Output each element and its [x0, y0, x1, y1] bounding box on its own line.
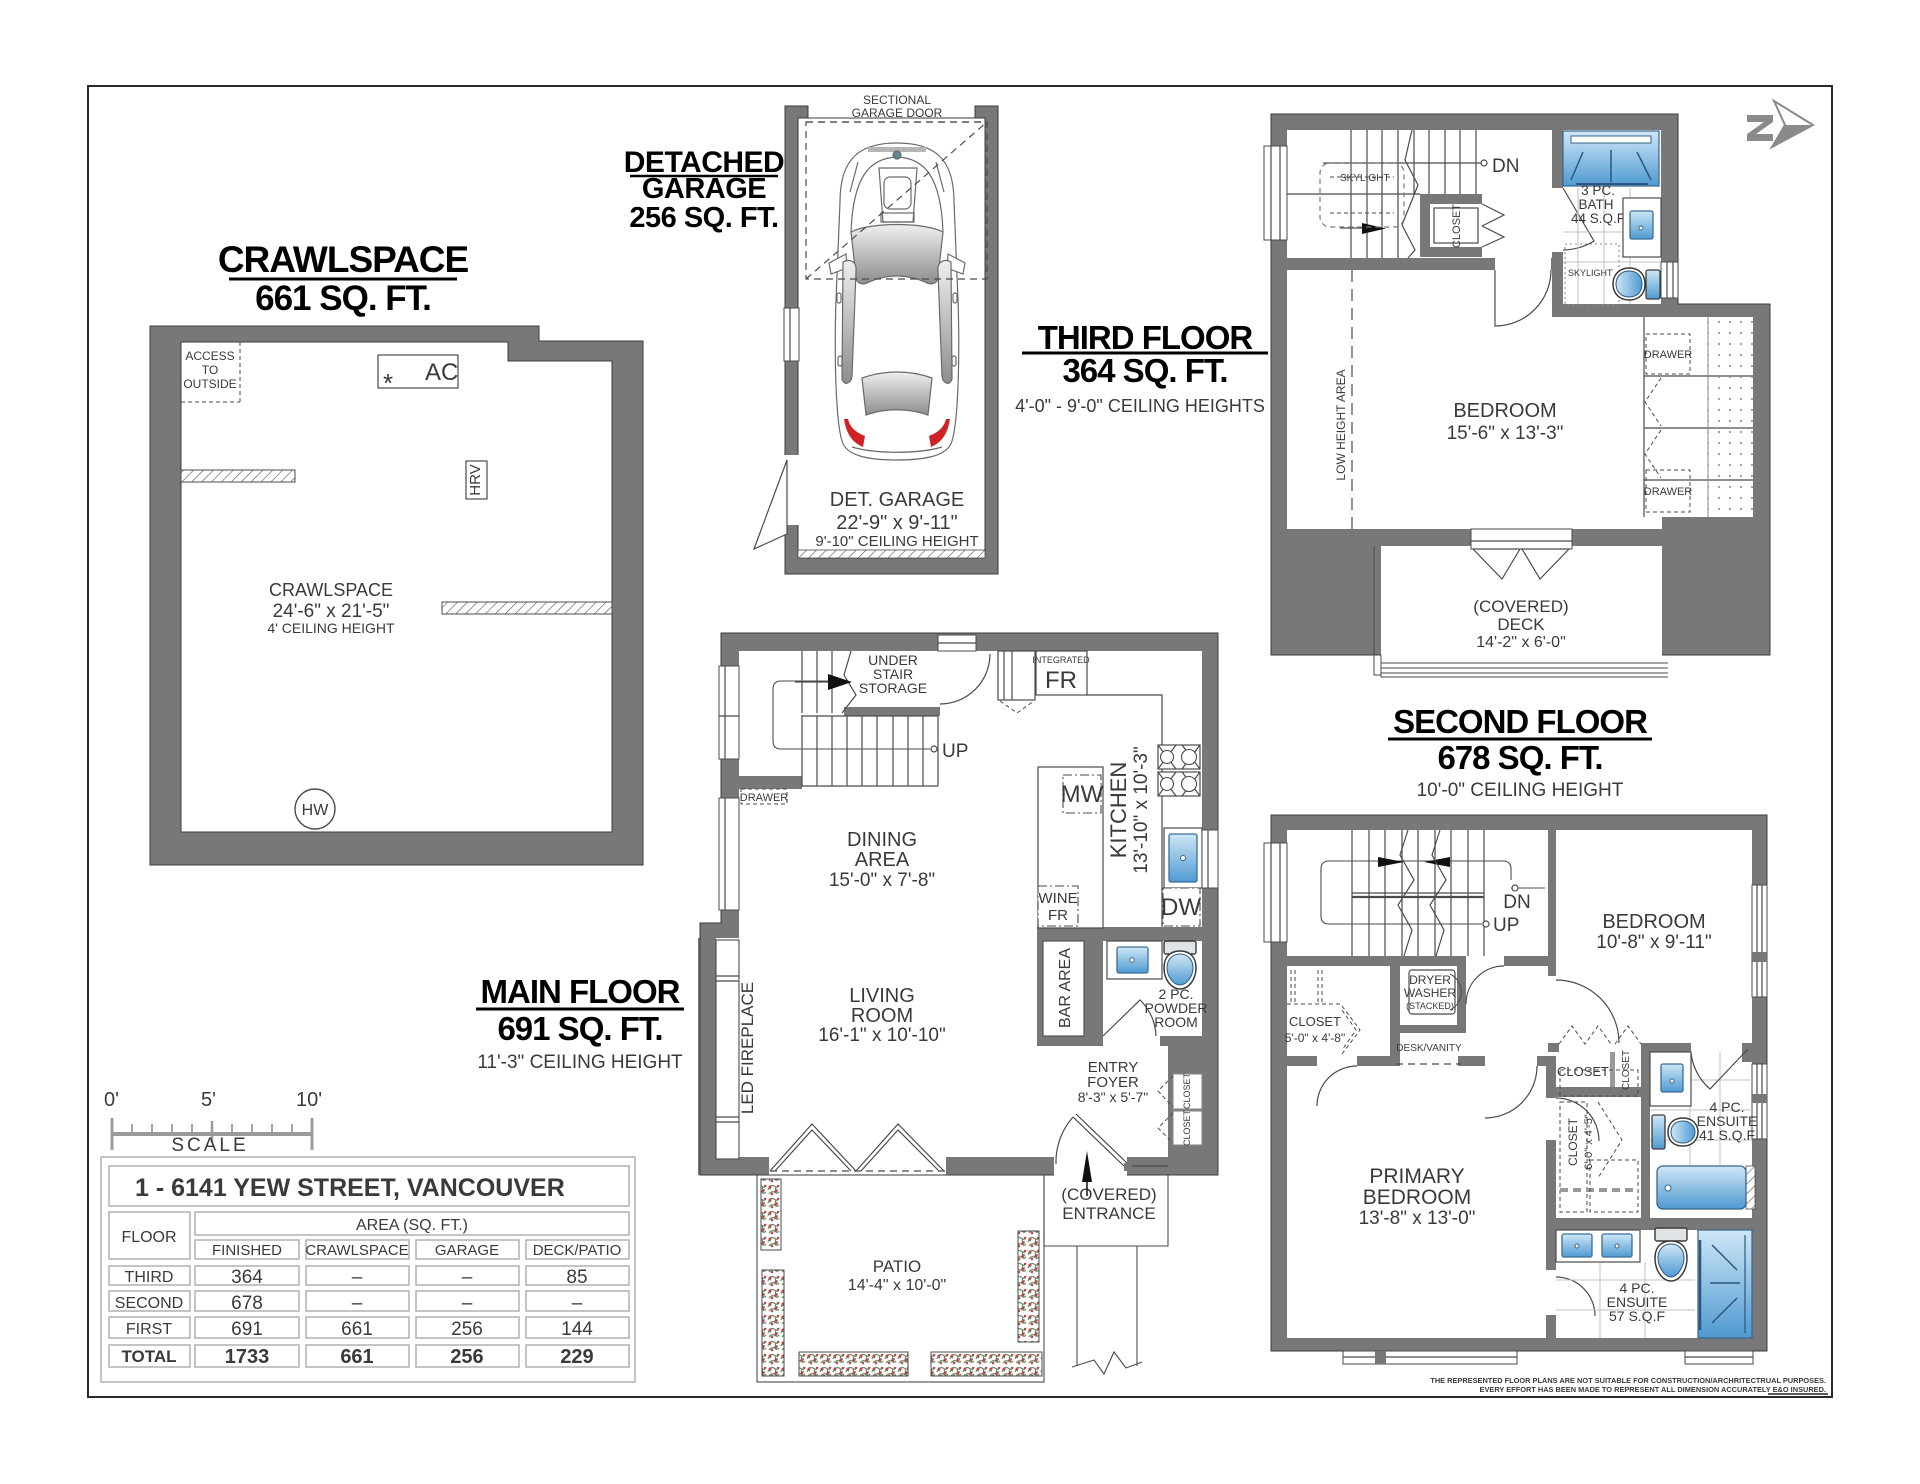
svg-text:661: 661	[340, 1346, 373, 1368]
svg-text:OUTSIDE: OUTSIDE	[183, 377, 236, 391]
svg-text:TOTAL: TOTAL	[121, 1347, 176, 1366]
svg-text:661 SQ. FT.: 661 SQ. FT.	[255, 279, 431, 318]
svg-text:UP: UP	[942, 741, 968, 762]
svg-text:8'-3" x 5'-7": 8'-3" x 5'-7"	[1078, 1089, 1149, 1105]
svg-text:15'-0" x 7'-8": 15'-0" x 7'-8"	[829, 870, 935, 891]
svg-text:HW: HW	[302, 802, 330, 819]
svg-text:BEDROOM: BEDROOM	[1602, 911, 1705, 933]
svg-text:(STACKED): (STACKED)	[1406, 1001, 1454, 1011]
svg-text:FIRST: FIRST	[126, 1321, 172, 1338]
svg-text:THIRD FLOOR: THIRD FLOOR	[1038, 319, 1254, 356]
svg-text:9'-10" CEILING HEIGHT: 9'-10" CEILING HEIGHT	[815, 533, 978, 550]
svg-text:BATH: BATH	[1578, 197, 1613, 212]
svg-text:EVERY EFFORT HAS BEEN MADE TO: EVERY EFFORT HAS BEEN MADE TO REPRESENT …	[1480, 1385, 1826, 1394]
svg-text:CLOSET: CLOSET	[1182, 1109, 1192, 1146]
svg-text:10': 10'	[296, 1089, 322, 1111]
svg-text:(COVERED): (COVERED)	[1473, 597, 1568, 616]
svg-text:ENTRANCE: ENTRANCE	[1062, 1204, 1156, 1223]
svg-text:BEDROOM: BEDROOM	[1453, 400, 1556, 422]
svg-text:–: –	[352, 1293, 363, 1314]
svg-text:ROOM: ROOM	[851, 1005, 913, 1027]
svg-text:CLOSET: CLOSET	[1182, 1072, 1192, 1109]
svg-text:SECOND: SECOND	[115, 1295, 183, 1312]
svg-text:256: 256	[451, 1319, 483, 1340]
svg-text:DECK/PATIO: DECK/PATIO	[533, 1242, 622, 1259]
svg-text:6'-0" x 4'-5": 6'-0" x 4'-5"	[1583, 1114, 1595, 1170]
svg-text:DET. GARAGE: DET. GARAGE	[830, 489, 964, 511]
svg-text:AC: AC	[425, 359, 458, 386]
svg-text:PATIO: PATIO	[873, 1257, 922, 1276]
svg-text:691 SQ. FT.: 691 SQ. FT.	[497, 1010, 662, 1047]
svg-text:13'-8" x 13'-0": 13'-8" x 13'-0"	[1359, 1208, 1476, 1229]
svg-text:KITCHEN: KITCHEN	[1106, 762, 1131, 859]
svg-text:GARAGE: GARAGE	[435, 1242, 499, 1259]
svg-text:PRIMARY: PRIMARY	[1369, 1165, 1464, 1188]
svg-text:678: 678	[231, 1293, 263, 1314]
svg-text:24'-6" x 21'-5": 24'-6" x 21'-5"	[273, 601, 390, 622]
svg-text:(COVERED): (COVERED)	[1061, 1185, 1156, 1204]
svg-text:UP: UP	[1493, 915, 1519, 936]
svg-text:WINE: WINE	[1038, 890, 1077, 907]
svg-text:14'-4" x 10'-0": 14'-4" x 10'-0"	[848, 1277, 946, 1294]
svg-text:661: 661	[341, 1319, 373, 1340]
svg-text:CLOSET: CLOSET	[1289, 1014, 1341, 1029]
svg-text:–: –	[462, 1267, 473, 1288]
svg-text:85: 85	[566, 1267, 587, 1288]
svg-text:DW: DW	[1161, 894, 1201, 921]
svg-text:CLOSET: CLOSET	[1566, 1117, 1580, 1166]
svg-text:FR: FR	[1045, 667, 1077, 694]
svg-text:MW: MW	[1061, 781, 1104, 808]
svg-text:22'-9" x 9'-11": 22'-9" x 9'-11"	[836, 512, 958, 534]
svg-text:–: –	[462, 1293, 473, 1314]
svg-text:364: 364	[231, 1267, 263, 1288]
svg-text:AREA (SQ. FT.): AREA (SQ. FT.)	[356, 1217, 468, 1234]
svg-text:CRAWLSPACE: CRAWLSPACE	[305, 1242, 408, 1259]
svg-text:DRAWER: DRAWER	[1644, 486, 1693, 498]
svg-text:DRAWER: DRAWER	[740, 792, 789, 804]
svg-text:AREA: AREA	[855, 849, 910, 871]
svg-text:ACCESS: ACCESS	[185, 349, 234, 363]
svg-text:14'-2" x 6'-0": 14'-2" x 6'-0"	[1476, 634, 1566, 651]
svg-text:GARAGE: GARAGE	[642, 173, 766, 205]
svg-text:CRAWLSPACE: CRAWLSPACE	[218, 239, 469, 280]
svg-text:364 SQ. FT.: 364 SQ. FT.	[1062, 352, 1227, 389]
svg-text:691: 691	[231, 1319, 263, 1340]
svg-text:DESK/VANITY: DESK/VANITY	[1396, 1043, 1462, 1054]
svg-text:SKYLIGHT: SKYLIGHT	[1340, 173, 1389, 184]
svg-text:THE REPRESENTED FLOOR PLANS AR: THE REPRESENTED FLOOR PLANS ARE NOT SUIT…	[1430, 1376, 1826, 1385]
svg-text:1733: 1733	[225, 1346, 270, 1368]
svg-text:DN: DN	[1492, 156, 1519, 177]
svg-text:DRYER: DRYER	[1409, 973, 1451, 987]
svg-text:4'-0" - 9'-0" CEILING HEIGHTS: 4'-0" - 9'-0" CEILING HEIGHTS	[1015, 396, 1265, 416]
svg-text:–: –	[572, 1293, 583, 1314]
svg-text:SKYLIGHT: SKYLIGHT	[1568, 268, 1613, 278]
svg-text:SECTIONAL: SECTIONAL	[863, 93, 931, 107]
svg-text:–: –	[352, 1267, 363, 1288]
svg-text:GARAGE DOOR: GARAGE DOOR	[852, 106, 943, 120]
svg-text:INTEGRATED: INTEGRATED	[1032, 655, 1090, 665]
svg-text:256 SQ. FT.: 256 SQ. FT.	[629, 202, 778, 234]
svg-text:CLOSET: CLOSET	[1451, 204, 1463, 248]
svg-text:44 S.Q.F: 44 S.Q.F	[1571, 211, 1625, 226]
svg-text:BAR AREA: BAR AREA	[1057, 948, 1074, 1028]
svg-text:SECOND FLOOR: SECOND FLOOR	[1393, 703, 1648, 740]
svg-text:5'-0" x 4'-8": 5'-0" x 4'-8"	[1285, 1031, 1345, 1045]
svg-text:MAIN FLOOR: MAIN FLOOR	[481, 973, 681, 1010]
svg-text:DRAWER: DRAWER	[1644, 349, 1693, 361]
svg-text:144: 144	[561, 1319, 593, 1340]
svg-text:THIRD: THIRD	[125, 1269, 174, 1286]
svg-text:10'-8" x 9'-11": 10'-8" x 9'-11"	[1596, 932, 1711, 953]
svg-text:16'-1" x 10'-10": 16'-1" x 10'-10"	[818, 1025, 945, 1046]
svg-text:4' CEILING HEIGHT: 4' CEILING HEIGHT	[267, 620, 395, 636]
svg-text:15'-6" x 13'-3": 15'-6" x 13'-3"	[1447, 423, 1564, 444]
svg-text:678 SQ. FT.: 678 SQ. FT.	[1437, 739, 1602, 776]
svg-text:DECK: DECK	[1497, 615, 1545, 634]
svg-text:229: 229	[560, 1346, 593, 1368]
svg-text:41 S.Q.F: 41 S.Q.F	[1699, 1127, 1755, 1143]
svg-text:11'-3" CEILING HEIGHT: 11'-3" CEILING HEIGHT	[477, 1052, 683, 1073]
svg-text:13'-10" x 10'-3": 13'-10" x 10'-3"	[1131, 746, 1152, 873]
svg-text:3 PC.: 3 PC.	[1581, 183, 1615, 198]
svg-text:BEDROOM: BEDROOM	[1363, 1186, 1472, 1209]
svg-text:0': 0'	[104, 1089, 119, 1111]
svg-text:CLOSET: CLOSET	[1557, 1064, 1609, 1079]
svg-text:*: *	[383, 368, 393, 398]
svg-text:DINING: DINING	[847, 829, 917, 851]
svg-text:5': 5'	[201, 1089, 216, 1111]
svg-text:10'-0" CEILING HEIGHT: 10'-0" CEILING HEIGHT	[1417, 780, 1624, 801]
svg-text:57 S.Q.F: 57 S.Q.F	[1609, 1308, 1665, 1324]
svg-text:FR: FR	[1048, 907, 1068, 924]
svg-text:FINISHED: FINISHED	[212, 1242, 282, 1259]
svg-text:LOW HEIGHT AREA: LOW HEIGHT AREA	[1334, 369, 1348, 480]
svg-text:STORAGE: STORAGE	[859, 680, 927, 696]
svg-text:TO: TO	[202, 363, 218, 377]
svg-text:CRAWLSPACE: CRAWLSPACE	[269, 580, 393, 600]
svg-text:HRV: HRV	[467, 464, 484, 495]
svg-text:LED FIREPLACE: LED FIREPLACE	[738, 982, 757, 1114]
svg-text:WASHER: WASHER	[1404, 986, 1457, 1000]
svg-text:1 - 6141 YEW STREET, VANCOUVER: 1 - 6141 YEW STREET, VANCOUVER	[135, 1174, 565, 1202]
svg-text:FLOOR: FLOOR	[121, 1229, 176, 1246]
svg-text:LIVING: LIVING	[849, 985, 915, 1007]
svg-text:256: 256	[450, 1346, 483, 1368]
svg-text:SCALE: SCALE	[171, 1135, 248, 1156]
svg-text:ROOM: ROOM	[1154, 1014, 1198, 1030]
svg-text:DN: DN	[1503, 892, 1530, 913]
